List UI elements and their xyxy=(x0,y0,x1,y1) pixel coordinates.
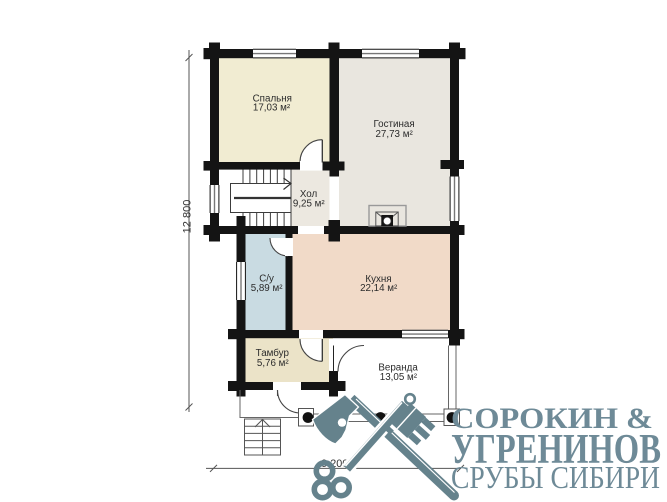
svg-text:17,03 м²: 17,03 м² xyxy=(253,102,291,113)
svg-text:СРУБЫ СИБИРИ: СРУБЫ СИБИРИ xyxy=(451,459,660,495)
svg-text:22,14 м²: 22,14 м² xyxy=(360,283,398,294)
svg-text:5,76 м²: 5,76 м² xyxy=(257,358,290,369)
svg-text:9,25 м²: 9,25 м² xyxy=(293,199,326,210)
svg-text:5,89 м²: 5,89 м² xyxy=(251,283,284,294)
svg-text:13,05 м²: 13,05 м² xyxy=(380,372,418,383)
svg-text:27,73 м²: 27,73 м² xyxy=(375,129,413,140)
svg-text:12 800: 12 800 xyxy=(182,200,194,234)
